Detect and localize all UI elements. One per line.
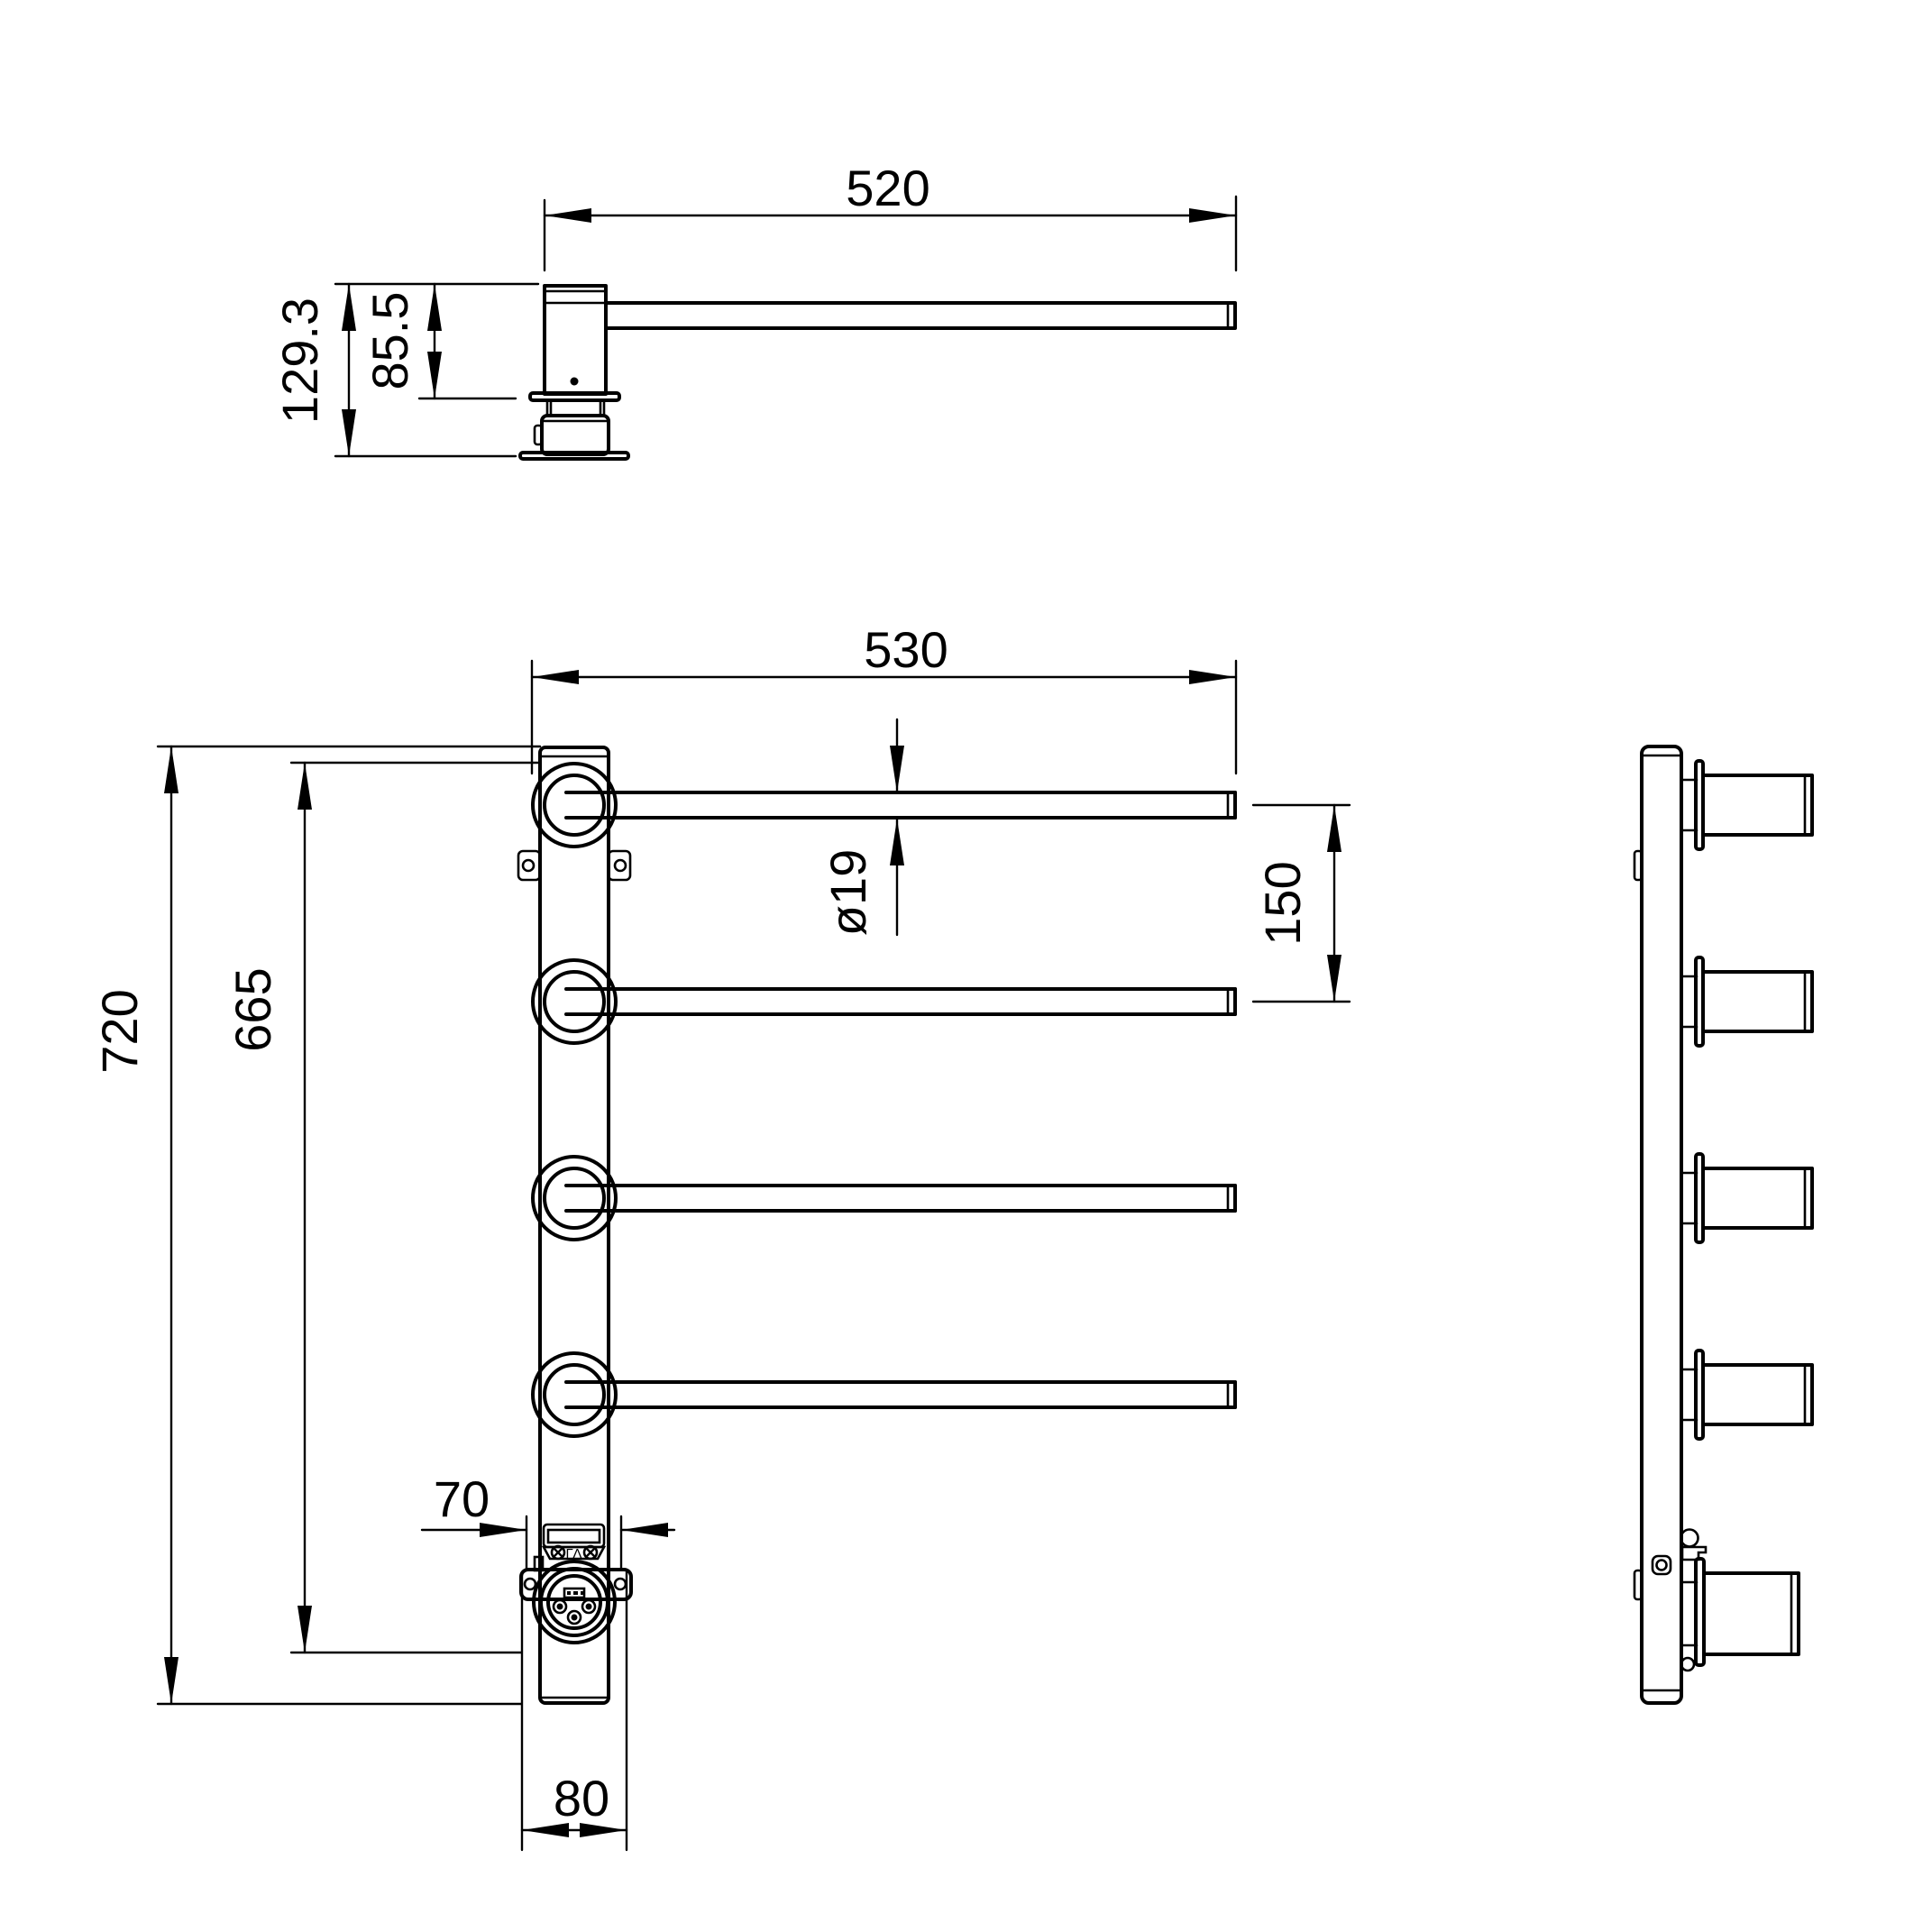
cable-hook xyxy=(1681,1530,1707,1561)
arm-bar-profile xyxy=(606,303,1235,328)
dim-label-upper-height: 85.5 xyxy=(362,292,418,390)
dim-label-socket-height: 665 xyxy=(224,967,281,1051)
dimension-base-width: 80 xyxy=(522,1572,627,1850)
side-bottom-screw xyxy=(1681,1658,1694,1671)
dimension-upper-height: 85.5 xyxy=(362,284,516,398)
dimension-bar-spacing: 150 xyxy=(1253,805,1350,1002)
dimension-bar-diameter: ø19 xyxy=(819,719,904,936)
top-profile-view: 520 129.3 85.5 xyxy=(271,160,1236,459)
socket-plate-hole-right xyxy=(615,1579,626,1589)
dim-label-total-height-top: 129.3 xyxy=(271,298,328,424)
bracket-screw-hole xyxy=(523,860,534,871)
side-bar-4 xyxy=(1681,1351,1812,1439)
side-view xyxy=(1634,746,1812,1703)
dim-label-bar-spacing: 150 xyxy=(1254,861,1311,945)
front-view: ΓΛ 530 xyxy=(91,621,1350,1850)
wall-tab-bottom xyxy=(1634,1570,1642,1599)
dim-label-junction-width: 70 xyxy=(434,1470,490,1527)
mount-flange-profile xyxy=(530,393,619,400)
wall-tab-top xyxy=(1634,851,1642,880)
dim-label-total-height: 720 xyxy=(91,989,148,1073)
wall-bracket-right-ear xyxy=(609,851,630,880)
towel-bar-2 xyxy=(566,989,1235,1014)
dimension-arm-length: 520 xyxy=(545,160,1236,270)
bracket-screw-hole xyxy=(615,860,626,871)
power-socket xyxy=(534,1561,615,1643)
set-screw-dot xyxy=(571,378,579,386)
dim-label-arm-length: 520 xyxy=(846,160,929,216)
wall-bracket-left-ear xyxy=(518,851,540,880)
side-screw-ring xyxy=(1653,1556,1671,1574)
towel-bar-1 xyxy=(566,792,1235,818)
side-bar-1 xyxy=(1681,761,1812,849)
dimension-socket-height: 665 xyxy=(224,763,540,1653)
towel-bar-3 xyxy=(566,1186,1235,1211)
junction-box-mark: ΓΛ xyxy=(566,1546,583,1561)
dimension-bar-length: 530 xyxy=(532,621,1236,774)
side-bar-2 xyxy=(1681,957,1812,1046)
side-bar-3 xyxy=(1681,1154,1812,1242)
dim-label-bar-length: 530 xyxy=(864,621,948,678)
dim-label-base-width: 80 xyxy=(554,1770,609,1827)
dimension-total-height: 720 xyxy=(91,746,540,1704)
cable-clip-profile xyxy=(535,426,542,444)
towel-rack-dimension-drawing: 520 129.3 85.5 xyxy=(0,0,1932,1932)
side-socket-housing xyxy=(1681,1559,1799,1665)
technical-drawing-page: 520 129.3 85.5 xyxy=(0,0,1932,1932)
junction-box: ΓΛ xyxy=(544,1525,604,1561)
socket-plate-hole-left xyxy=(525,1579,536,1589)
towel-bar-4 xyxy=(566,1382,1235,1407)
dim-label-bar-diameter: ø19 xyxy=(819,849,876,937)
